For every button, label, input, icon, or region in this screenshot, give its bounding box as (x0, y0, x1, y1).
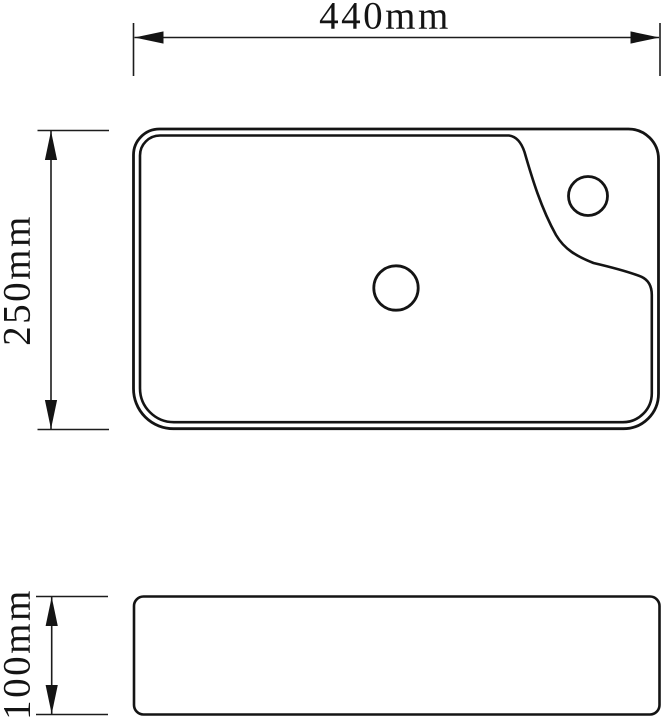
svg-text:250mm: 250mm (0, 214, 39, 346)
svg-text:100mm: 100mm (0, 588, 39, 720)
svg-text:440mm: 440mm (319, 0, 451, 38)
